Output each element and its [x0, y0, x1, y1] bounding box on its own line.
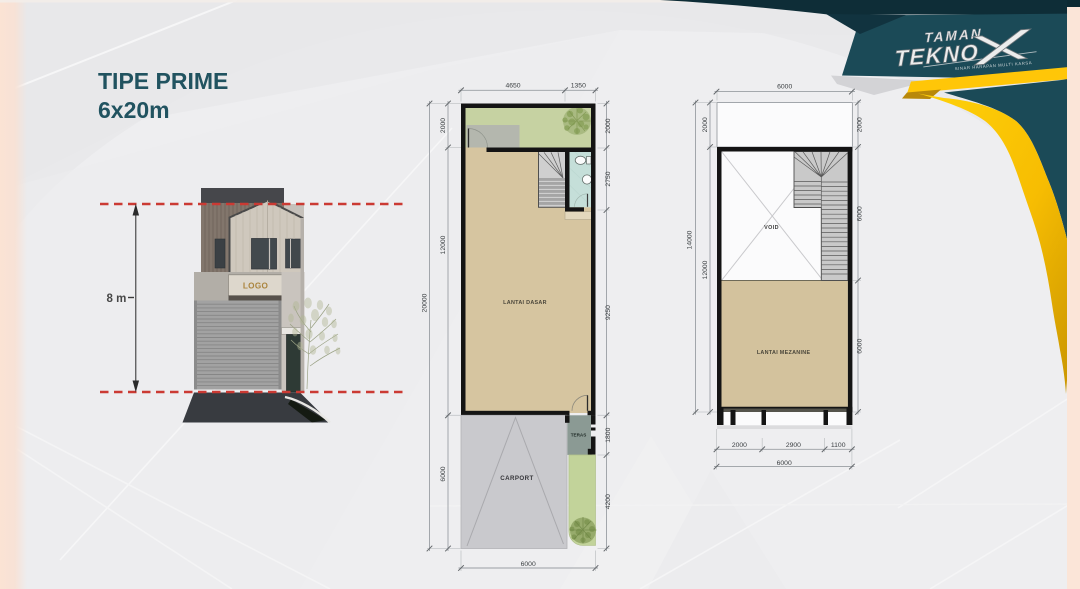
svg-text:2000: 2000	[857, 117, 864, 132]
svg-text:6000: 6000	[777, 460, 792, 467]
svg-text:6000: 6000	[440, 466, 447, 481]
svg-text:4650: 4650	[505, 82, 520, 89]
svg-text:8 m: 8 m	[107, 293, 127, 305]
svg-text:6000: 6000	[857, 338, 864, 353]
svg-text:14000: 14000	[687, 230, 694, 249]
svg-text:6000: 6000	[857, 206, 864, 221]
svg-text:1800: 1800	[605, 427, 612, 442]
svg-text:6000: 6000	[521, 561, 536, 568]
svg-text:CARPORT: CARPORT	[500, 475, 533, 482]
svg-text:LANTAI DASAR: LANTAI DASAR	[503, 300, 547, 306]
svg-text:12000: 12000	[702, 260, 709, 279]
svg-text:2000: 2000	[605, 118, 612, 133]
svg-text:2750: 2750	[605, 171, 612, 186]
svg-text:1100: 1100	[831, 442, 846, 449]
svg-text:TIPE PRIME: TIPE PRIME	[98, 68, 228, 94]
svg-text:6000: 6000	[777, 84, 792, 91]
svg-text:1350: 1350	[571, 82, 586, 89]
svg-text:9250: 9250	[605, 305, 612, 320]
svg-text:VOID: VOID	[764, 225, 779, 231]
svg-text:6x20m: 6x20m	[98, 97, 170, 123]
svg-text:2000: 2000	[732, 442, 747, 449]
svg-text:2000: 2000	[702, 117, 709, 132]
svg-text:LOGO: LOGO	[243, 282, 269, 291]
svg-text:4200: 4200	[605, 494, 612, 509]
svg-text:TERAS: TERAS	[571, 433, 587, 438]
svg-text:2000: 2000	[440, 118, 447, 133]
svg-text:20000: 20000	[421, 293, 428, 312]
svg-text:2900: 2900	[786, 442, 801, 449]
svg-text:12000: 12000	[440, 235, 447, 254]
svg-text:LANTAI MEZANINE: LANTAI MEZANINE	[757, 350, 811, 356]
